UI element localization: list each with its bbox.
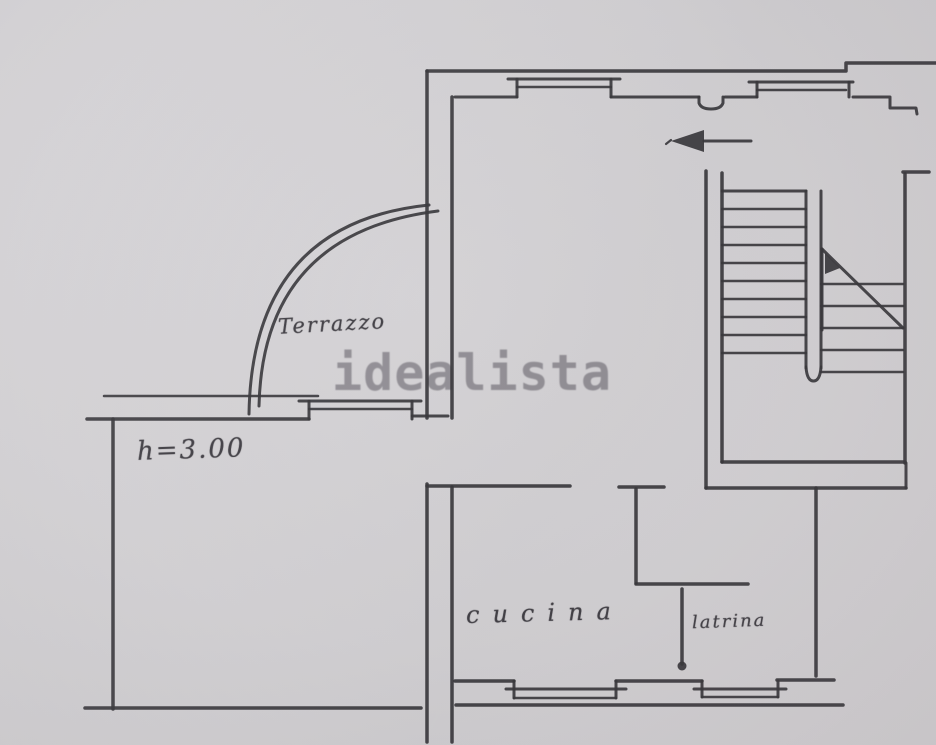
left-room-walls <box>85 419 421 709</box>
window-bottom-2 <box>694 681 786 697</box>
top-exterior-wall <box>427 63 936 114</box>
stair-treads-left <box>722 209 806 353</box>
stair-divider <box>806 191 821 381</box>
floorplan-scan: idealista <box>0 0 936 745</box>
stair-treads-right <box>821 284 903 372</box>
kitchen-label: cucina <box>466 597 624 629</box>
window-top-2 <box>749 82 853 97</box>
floorplan-linework <box>0 0 936 745</box>
terrace <box>87 205 448 419</box>
central-double-wall <box>427 71 452 742</box>
door-hinge-mark <box>678 662 687 671</box>
terrace-arc <box>249 205 438 414</box>
direction-arrow <box>666 130 751 152</box>
toilet-label: latrina <box>692 610 767 634</box>
kitchen-toilet-walls <box>427 486 843 705</box>
window-top-1 <box>508 79 620 97</box>
staircase <box>706 171 929 488</box>
ceiling-height-label: h=3.00 <box>137 433 246 467</box>
window-bottom-1 <box>506 681 626 698</box>
wall-notch <box>699 97 723 109</box>
stair-break-triangle <box>822 249 903 330</box>
